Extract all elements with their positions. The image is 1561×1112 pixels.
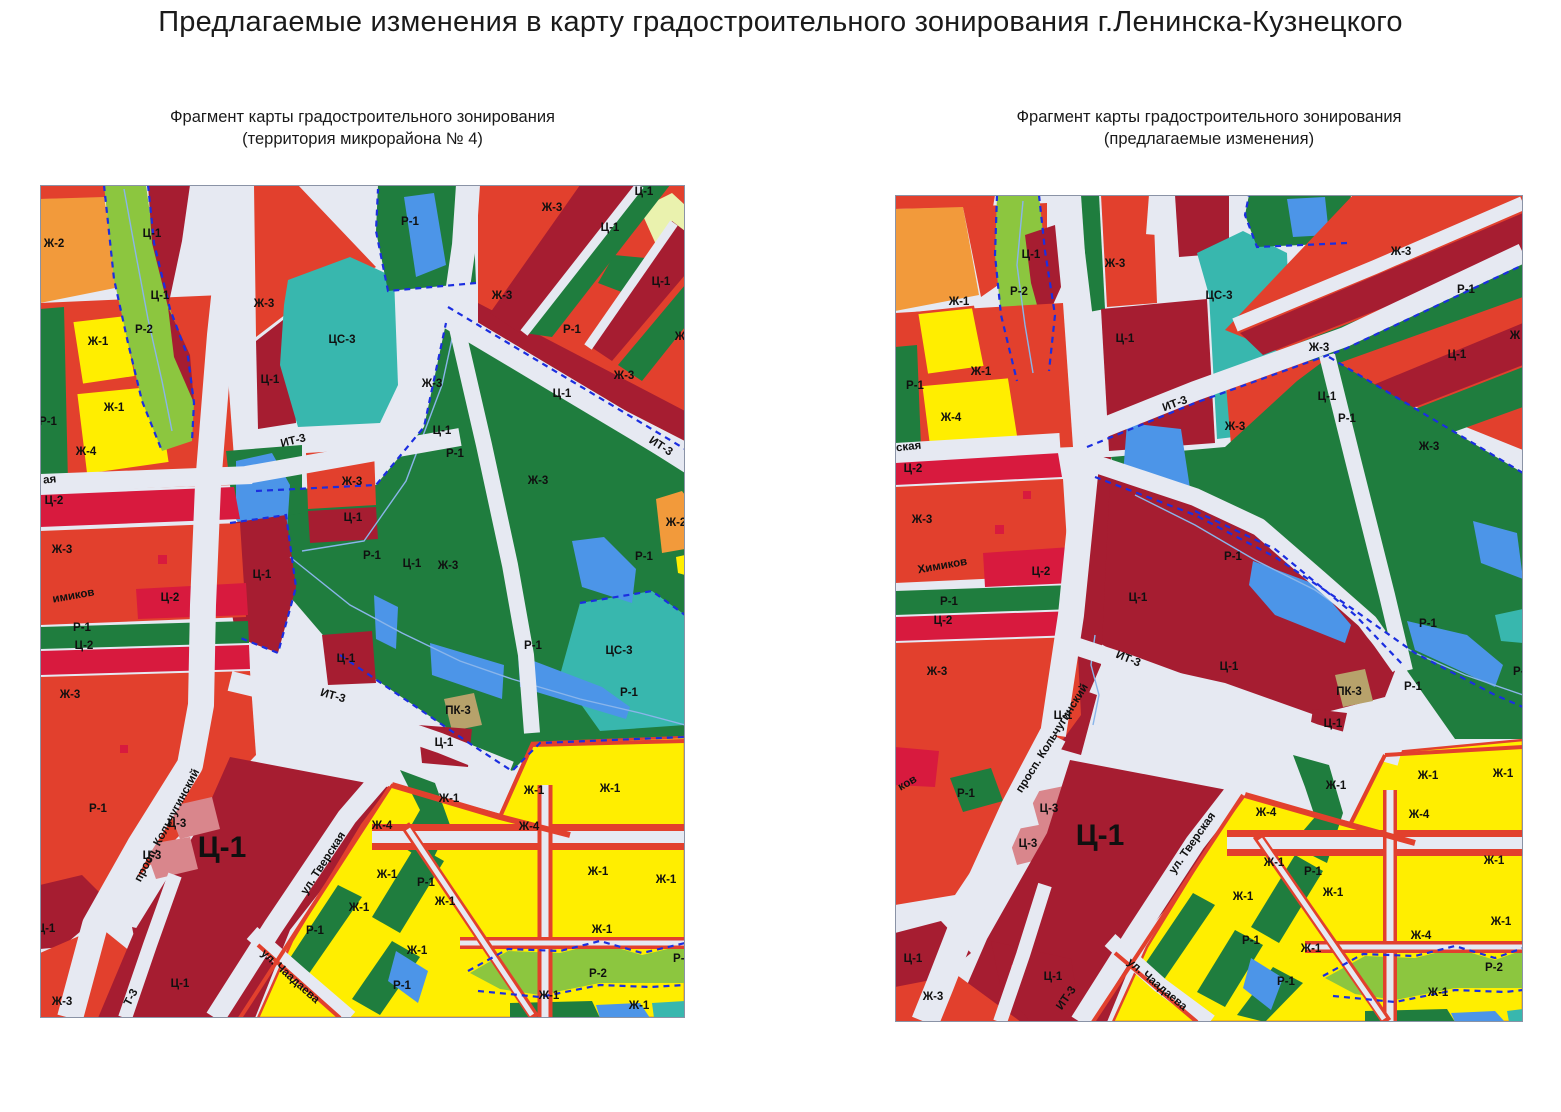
svg-text:Ж-4: Ж-4 (75, 446, 97, 458)
svg-text:Ж-2: Ж-2 (43, 238, 65, 250)
svg-text:Ж-3: Ж-3 (437, 560, 459, 572)
svg-text:Р-1: Р-1 (1242, 935, 1261, 947)
svg-text:Ж-4: Ж-4 (1255, 807, 1277, 819)
svg-text:Ц-1: Ц-1 (143, 228, 162, 240)
svg-text:Р-1: Р-1 (1224, 551, 1243, 563)
svg-text:Ж-3: Ж-3 (51, 544, 73, 556)
caption-proposed-map: Фрагмент карты градостроительного зониро… (895, 106, 1523, 151)
svg-text:Ж: Ж (1509, 330, 1521, 342)
svg-text:Ж-1: Ж-1 (1325, 780, 1347, 792)
svg-text:Ц-2: Ц-2 (904, 463, 923, 475)
svg-text:Ж-3: Ж-3 (1224, 421, 1246, 433)
svg-text:Ц-1: Ц-1 (435, 737, 454, 749)
svg-text:Ж-4: Ж-4 (1408, 809, 1430, 821)
svg-text:Р-1: Р-1 (524, 640, 543, 652)
svg-text:Р-1: Р-1 (1277, 976, 1296, 988)
svg-text:Ц-1: Ц-1 (198, 831, 247, 864)
svg-text:ПК-3: ПК-3 (445, 705, 471, 717)
svg-text:Ж-4: Ж-4 (940, 412, 962, 424)
svg-text:Ж-1: Ж-1 (591, 924, 613, 936)
svg-text:Ц-2: Ц-2 (75, 640, 94, 652)
svg-text:Ц-2: Ц-2 (45, 495, 64, 507)
svg-text:Р-1: Р-1 (1338, 413, 1357, 425)
svg-text:Ц-2: Ц-2 (934, 615, 953, 627)
svg-text:Ж-3: Ж-3 (59, 689, 81, 701)
page: Предлагаемые изменения в карту градостро… (0, 0, 1561, 1112)
svg-text:Ц-2: Ц-2 (161, 592, 180, 604)
svg-text:Ж-3: Ж-3 (1104, 258, 1126, 270)
svg-text:Р-2: Р-2 (1485, 962, 1503, 974)
zoning-map-current-svg: Ж-2Ц-1Ц-1Р-2Ж-1Ж-1Ж-4Р-1Ж-3ЦС-3Ц-1Р-1Ж-3… (40, 185, 685, 1018)
svg-text:Ж-1: Ж-1 (434, 896, 456, 908)
svg-text:Ц-1: Ц-1 (337, 653, 356, 665)
svg-text:Ж-3: Ж-3 (421, 378, 443, 390)
svg-text:Ц-1: Ц-1 (1129, 592, 1148, 604)
svg-text:Ж-1: Ж-1 (1427, 987, 1449, 999)
svg-text:Р-1: Р-1 (1304, 866, 1323, 878)
svg-text:ПК-3: ПК-3 (1336, 686, 1362, 698)
svg-text:Ж-1: Ж-1 (655, 874, 677, 886)
caption-current-map: Фрагмент карты градостроительного зониро… (40, 106, 685, 151)
zoning-map-proposed: Ж-1Ж-1Р-2Ц-1Р-1Ж-4Ц-2Ж-3Ц-2Р-1Ц-2Ж-3Ж-3Ц… (895, 195, 1523, 1022)
svg-text:Ж-4: Ж-4 (518, 821, 540, 833)
svg-text:Ж-3: Ж-3 (926, 666, 948, 678)
svg-text:Р-1: Р-1 (1419, 618, 1438, 630)
svg-text:Ц-1: Ц-1 (1448, 349, 1467, 361)
svg-text:Ж-1: Ж-1 (970, 366, 992, 378)
svg-text:Ц-1: Ц-1 (344, 512, 363, 524)
svg-text:Ж-3: Ж-3 (1418, 441, 1440, 453)
svg-text:Ц-1: Ц-1 (253, 569, 272, 581)
svg-text:Р-1: Р-1 (940, 596, 959, 608)
svg-text:ая: ая (43, 473, 57, 486)
svg-text:Ц-1: Ц-1 (403, 558, 422, 570)
svg-text:Ж-3: Ж-3 (527, 475, 549, 487)
caption-proposed-line1: Фрагмент карты градостроительного зониро… (895, 106, 1523, 128)
svg-text:Ж-1: Ж-1 (406, 945, 428, 957)
svg-text:Р-1: Р-1 (417, 877, 436, 889)
svg-text:Ж-3: Ж-3 (51, 996, 73, 1008)
svg-text:Ц-3: Ц-3 (1019, 838, 1038, 850)
svg-text:Р-1: Р-1 (89, 803, 108, 815)
svg-text:Ж-3: Ж-3 (491, 290, 513, 302)
svg-text:Ц-1: Ц-1 (151, 290, 170, 302)
svg-text:Р-1: Р-1 (446, 448, 465, 460)
svg-text:Р-1: Р-1 (673, 953, 685, 965)
svg-text:Ц-1: Ц-1 (652, 276, 671, 288)
svg-text:Ж-1: Ж-1 (599, 783, 621, 795)
svg-text:Р-2: Р-2 (589, 968, 607, 980)
svg-text:Ж-1: Ж-1 (1490, 916, 1512, 928)
svg-text:Р-1: Р-1 (363, 550, 382, 562)
zoning-map-current: Ж-2Ц-1Ц-1Р-2Ж-1Ж-1Ж-4Р-1Ж-3ЦС-3Ц-1Р-1Ж-3… (40, 185, 685, 1018)
svg-text:Ц-1: Ц-1 (904, 953, 923, 965)
svg-text:Ж-1: Ж-1 (438, 793, 460, 805)
svg-text:Ц-1: Ц-1 (1116, 333, 1135, 345)
svg-text:Ж-1: Ж-1 (87, 336, 109, 348)
svg-text:Р-1: Р-1 (393, 980, 412, 992)
svg-text:Р-1: Р-1 (635, 551, 654, 563)
caption-current-line1: Фрагмент карты градостроительного зониро… (40, 106, 685, 128)
caption-proposed-line2: (предлагаемые изменения) (895, 128, 1523, 150)
svg-text:Ц-1: Ц-1 (553, 388, 572, 400)
svg-text:Р-2: Р-2 (1010, 286, 1028, 298)
svg-text:Ж-4: Ж-4 (1410, 930, 1432, 942)
zoning-map-proposed-svg: Ж-1Ж-1Р-2Ц-1Р-1Ж-4Ц-2Ж-3Ц-2Р-1Ц-2Ж-3Ж-3Ц… (895, 195, 1523, 1022)
svg-text:Ж-3: Ж-3 (922, 991, 944, 1003)
svg-text:Ж-3: Ж-3 (613, 370, 635, 382)
svg-text:Ж-1: Ж-1 (376, 869, 398, 881)
svg-text:Р-1: Р-1 (40, 416, 58, 428)
svg-text:Р-1: Р-1 (306, 925, 325, 937)
caption-current-line2: (территория микрорайона № 4) (40, 128, 685, 150)
svg-text:Ж-4: Ж-4 (371, 820, 393, 832)
svg-text:Ц-1: Ц-1 (601, 222, 620, 234)
svg-text:Ц-1: Ц-1 (635, 186, 654, 198)
page-title: Предлагаемые изменения в карту градостро… (0, 6, 1561, 39)
svg-text:Ж-3: Ж-3 (1390, 246, 1412, 258)
svg-text:Ж-1: Ж-1 (538, 990, 560, 1002)
svg-text:Ж-2: Ж-2 (665, 517, 685, 529)
svg-text:Ж-1: Ж-1 (1232, 891, 1254, 903)
svg-text:Ц-1: Ц-1 (1324, 718, 1343, 730)
svg-text:Ц-1: Ц-1 (1220, 661, 1239, 673)
svg-text:Ц-3: Ц-3 (1040, 803, 1059, 815)
svg-text:Ж-1: Ж-1 (587, 866, 609, 878)
svg-text:Р-1: Р-1 (563, 324, 582, 336)
svg-text:Ж-1: Ж-1 (1300, 943, 1322, 955)
svg-text:ЦС-3: ЦС-3 (606, 645, 633, 657)
svg-text:Ж-1: Ж-1 (1492, 768, 1514, 780)
svg-text:Ж-3: Ж-3 (541, 202, 563, 214)
svg-text:Ж-1: Ж-1 (348, 902, 370, 914)
svg-text:Ц-1: Ц-1 (1318, 391, 1337, 403)
svg-text:Ж-1: Ж-1 (1483, 855, 1505, 867)
svg-text:Ж-3: Ж-3 (1308, 342, 1330, 354)
svg-text:Ж-1: Ж-1 (1263, 857, 1285, 869)
svg-text:Р-1: Р-1 (620, 687, 639, 699)
svg-text:Ж-3: Ж-3 (253, 298, 275, 310)
svg-text:Р-1: Р-1 (1513, 666, 1523, 678)
svg-text:Ц-1: Ц-1 (171, 978, 190, 990)
svg-text:Ж-3: Ж-3 (911, 514, 933, 526)
svg-text:Ж-3: Ж-3 (341, 476, 363, 488)
svg-text:ЦС-3: ЦС-3 (329, 334, 356, 346)
svg-text:Р-1: Р-1 (1457, 284, 1476, 296)
svg-text:Ц-1: Ц-1 (40, 923, 56, 935)
svg-text:Ж: Ж (674, 331, 685, 343)
svg-text:Р-1: Р-1 (1404, 681, 1423, 693)
svg-text:Ц-1: Ц-1 (261, 374, 280, 386)
svg-text:Ж-1: Ж-1 (1322, 887, 1344, 899)
svg-text:Р-1: Р-1 (957, 788, 976, 800)
svg-text:Ц-1: Ц-1 (1044, 971, 1063, 983)
svg-text:Ж-1: Ж-1 (103, 402, 125, 414)
svg-text:Р-1: Р-1 (906, 380, 925, 392)
svg-text:Ц-1: Ц-1 (1022, 249, 1041, 261)
svg-text:Ц-1: Ц-1 (433, 425, 452, 437)
svg-text:ЦС-3: ЦС-3 (1206, 290, 1233, 302)
svg-text:Р-1: Р-1 (401, 216, 420, 228)
svg-text:Р-2: Р-2 (135, 324, 153, 336)
svg-text:Ж-1: Ж-1 (948, 296, 970, 308)
svg-text:Ж-1: Ж-1 (628, 1000, 650, 1012)
svg-text:Ж-1: Ж-1 (1417, 770, 1439, 782)
svg-text:Ц-2: Ц-2 (1032, 566, 1051, 578)
svg-text:Ж-1: Ж-1 (523, 785, 545, 797)
svg-text:Р-1: Р-1 (73, 622, 92, 634)
svg-text:Ц-1: Ц-1 (1076, 819, 1125, 852)
